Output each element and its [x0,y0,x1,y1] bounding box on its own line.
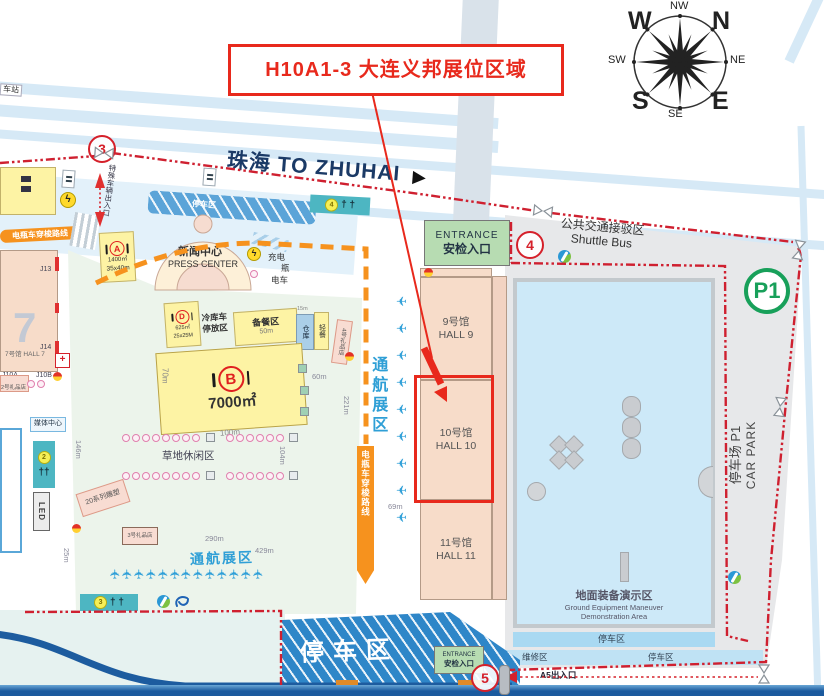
big-parking-label: 停车区 [300,636,400,668]
shuttle-route-dashed [96,243,366,444]
hall-10-highlight-rect [414,375,494,503]
booth-callout-text: H10A1-3 大连义邦展位区域 [265,58,527,82]
venue-boundary [0,153,801,685]
map-lines [0,0,824,696]
up-arrow-icon [95,173,105,188]
special-vehicle-route [95,173,105,227]
down-arrow-icon [95,212,105,227]
gate-5: 5 [471,664,499,692]
bus-shelter [499,665,510,695]
venue-map: 停车区 [0,0,824,696]
a5-route [505,671,758,683]
south-road [0,685,824,696]
booth-callout: H10A1-3 大连义邦展位区域 [228,44,564,96]
entrance-cn: 安检入口 [444,659,474,668]
right-road-strip [801,126,818,696]
